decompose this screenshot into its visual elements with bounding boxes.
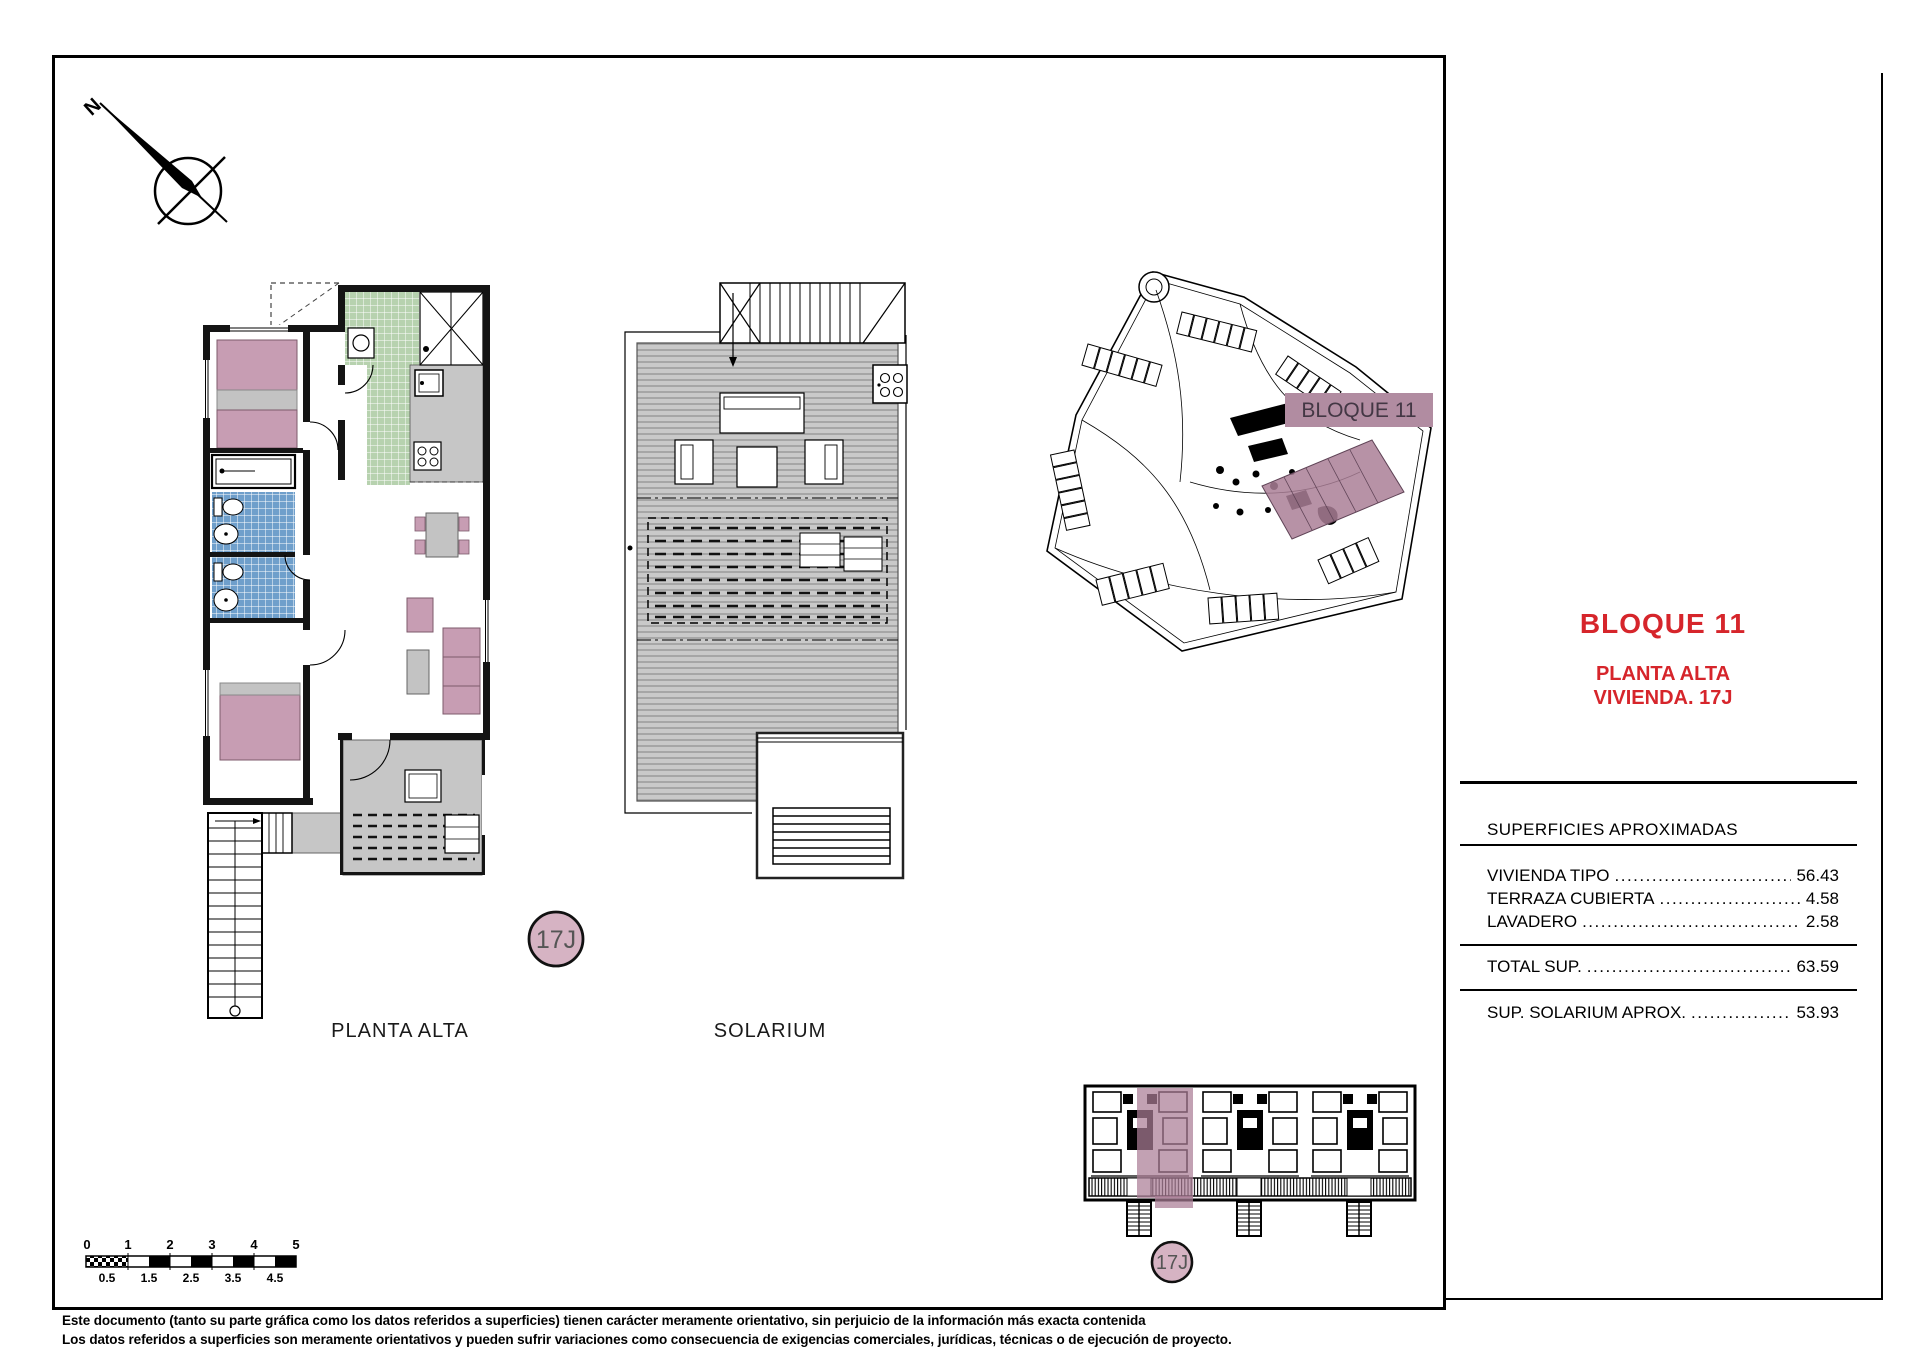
total-label: TOTAL SUP. [1487,957,1582,977]
scale-top-labels: 0 1 2 3 4 5 [83,1237,299,1252]
table-rule-total [1460,944,1857,946]
compass-needle [100,103,202,198]
dot-leader [1615,866,1792,886]
scale-bottom-labels: 0.5 1.5 2.5 3.5 4.5 [99,1271,284,1285]
surfaces-header: SUPERFICIES APROXIMADAS [1487,820,1847,840]
panel-subtitle-1: PLANTA ALTA [1443,662,1883,686]
stairwell [420,292,483,365]
disclaimer-line-2: Los datos referidos a superficies son me… [62,1330,1882,1349]
surfaces-rows: VIVIENDA TIPO 56.43 TERRAZA CUBIERTA 4.5… [1487,866,1839,935]
dot-leader [1660,889,1801,909]
solarium-plan [600,265,930,905]
bathroom-1 [212,492,295,552]
svg-text:3.5: 3.5 [225,1271,242,1285]
lower-terrace-section [757,733,903,878]
plan-sheet: N [0,0,1920,1352]
site-plan: BLOQUE 11 [1030,260,1450,710]
solarium-value: 53.93 [1796,1003,1839,1023]
kitchen-tiles [367,365,410,485]
solarium-row: SUP. SOLARIUM APROX. 53.93 [1487,1003,1839,1026]
terrace [343,740,482,875]
panel-subtitle-2: VIVIENDA. 17J [1443,686,1883,710]
panel-heading: BLOQUE 11 PLANTA ALTA VIVIENDA. 17J [1443,608,1883,710]
north-compass: N [80,78,250,248]
surface-row: VIVIENDA TIPO 56.43 [1487,866,1839,889]
north-label: N [80,94,105,120]
surface-row: LAVADERO 2.58 [1487,912,1839,935]
bloque-11-tag-label: BLOQUE 11 [1301,399,1416,422]
svg-text:4: 4 [250,1237,258,1252]
roundabout [1139,272,1169,302]
panel-title: BLOQUE 11 [1443,608,1883,640]
table-rule-solarium [1460,989,1857,991]
unit-badge-label: 17J [536,926,576,954]
svg-text:0: 0 [83,1237,90,1252]
svg-text:1: 1 [124,1237,131,1252]
bed-1 [217,340,297,448]
disclaimer-line-1: Este documento (tanto su parte gráfica c… [62,1311,1882,1330]
planta-alta-caption: PLANTA ALTA [240,1020,560,1043]
svg-text:3: 3 [208,1237,215,1252]
unit-badge-planta: 17J [525,908,587,970]
surface-value: 4.58 [1806,889,1839,909]
bloque-11-tag: BLOQUE 11 [1285,393,1433,427]
surface-value: 2.58 [1806,912,1839,932]
bbq-unit [873,365,907,403]
surface-row: TERRAZA CUBIERTA 4.58 [1487,889,1839,912]
exterior-stairs [208,813,292,1018]
table-rule-top [1460,781,1857,784]
surface-value: 56.43 [1796,866,1839,886]
washer [348,328,374,358]
unit-badge-key-label: 17J [1156,1252,1188,1274]
planta-alta-floorplan [195,270,495,1030]
dot-leader [1691,1003,1791,1023]
table-rule-header [1460,844,1857,846]
surface-label: TERRAZA CUBIERTA [1487,889,1655,909]
solarium-caption: SOLARIUM [640,1020,900,1043]
svg-text:2: 2 [166,1237,173,1252]
total-row: TOTAL SUP. 63.59 [1487,957,1839,980]
svg-text:0.5: 0.5 [99,1271,116,1285]
svg-text:5: 5 [292,1237,299,1252]
solarium-label: SUP. SOLARIUM APROX. [1487,1003,1686,1023]
dot-leader [1582,912,1801,932]
scale-bar: 0 1 2 3 4 5 0.5 1.5 2.5 3.5 4.5 [78,1234,323,1294]
total-value: 63.59 [1796,957,1839,977]
key-plan: 17J [1075,1080,1425,1290]
dashed-void [271,283,339,331]
bathroom-2 [212,557,295,618]
panel-bottom-border [1443,1298,1883,1300]
stove [414,442,441,470]
svg-text:1.5: 1.5 [141,1271,158,1285]
kitchen-sink [415,370,443,396]
svg-text:2.5: 2.5 [183,1271,200,1285]
key-plan-highlight [1137,1088,1193,1198]
dot-leader [1587,957,1792,977]
disclaimer: Este documento (tanto su parte gráfica c… [62,1311,1882,1349]
bed-2 [220,683,300,760]
bathtub [212,455,295,488]
surface-label: LAVADERO [1487,912,1577,932]
surface-label: VIVIENDA TIPO [1487,866,1610,886]
svg-text:4.5: 4.5 [267,1271,284,1285]
